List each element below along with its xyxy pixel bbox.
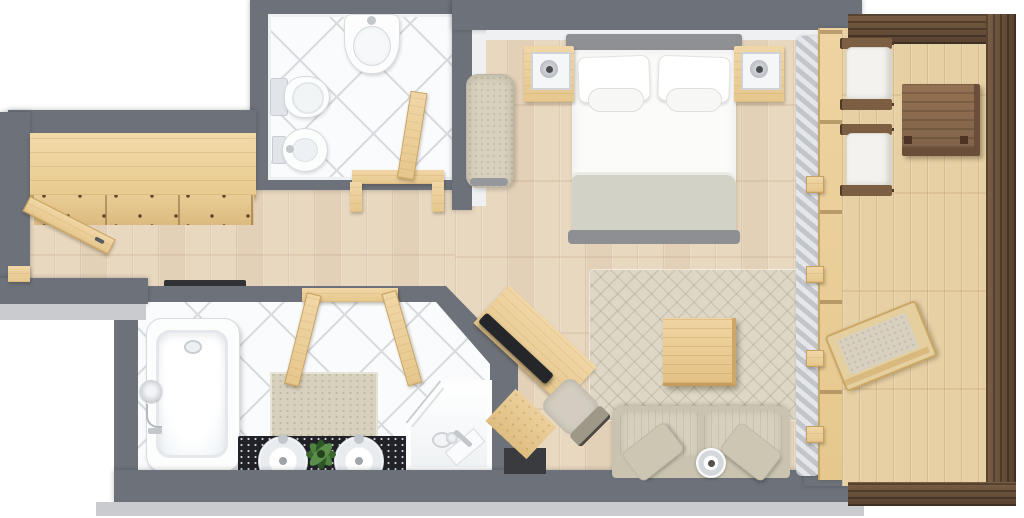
wc-door-jamb bbox=[350, 182, 362, 212]
bed-footboard bbox=[568, 230, 740, 244]
table-leg bbox=[960, 136, 968, 144]
wc-door-jamb bbox=[432, 182, 444, 212]
lamp-bulb bbox=[756, 66, 763, 73]
bedroom-top-wall bbox=[452, 0, 862, 30]
bed-blanket bbox=[572, 172, 736, 234]
door-handle-icon bbox=[94, 236, 105, 244]
faucet-icon bbox=[286, 145, 294, 153]
toilet bbox=[270, 74, 330, 118]
nightstand-left bbox=[524, 46, 574, 102]
coffee-table bbox=[663, 318, 736, 386]
balcony-table bbox=[902, 84, 980, 156]
window-mullion bbox=[806, 176, 824, 193]
window-mullion bbox=[806, 426, 824, 443]
balcony-railing-right bbox=[986, 14, 1016, 506]
potted-plant bbox=[302, 434, 340, 474]
window-mullion bbox=[806, 266, 824, 283]
bathtub-tap bbox=[148, 428, 162, 434]
wardrobe bbox=[30, 133, 256, 197]
entry-door-jamb bbox=[8, 266, 30, 282]
sofa bbox=[612, 406, 790, 478]
washbasin-bowl bbox=[353, 26, 391, 66]
decor-bowl bbox=[696, 448, 726, 478]
bathtub bbox=[146, 318, 238, 470]
toilet-seat bbox=[292, 82, 324, 114]
faucet-icon bbox=[278, 434, 288, 444]
bed-bolster-right bbox=[666, 88, 722, 112]
drain-icon bbox=[279, 457, 287, 465]
wc-washbasin bbox=[344, 14, 398, 74]
shower-head-icon bbox=[140, 380, 162, 402]
lamp-icon bbox=[750, 60, 768, 78]
bench-base bbox=[470, 178, 508, 186]
upholstered-bench bbox=[466, 74, 514, 188]
chair-armrest bbox=[842, 185, 892, 196]
drain-icon bbox=[355, 457, 363, 465]
window-mullion bbox=[806, 350, 824, 367]
bathtub-drain bbox=[184, 340, 202, 354]
lamp-bulb bbox=[546, 66, 553, 73]
faucet-icon bbox=[367, 16, 376, 25]
floor-plan bbox=[0, 0, 1024, 518]
bed-headboard bbox=[566, 34, 742, 50]
balcony-armchair-top bbox=[840, 38, 894, 112]
lamp-icon bbox=[540, 60, 558, 78]
balcony-railing-bottom bbox=[848, 482, 1016, 506]
wall-outer-face bbox=[96, 502, 864, 516]
outside-area bbox=[0, 300, 116, 518]
chair-cushion bbox=[846, 47, 892, 103]
curtain bbox=[796, 36, 820, 476]
table-leg bbox=[904, 136, 912, 144]
nightstand-right bbox=[734, 46, 784, 102]
wall-outer-face bbox=[0, 304, 146, 320]
bed-bolster-left bbox=[588, 88, 644, 112]
faucet-icon bbox=[354, 434, 364, 444]
double-bed bbox=[566, 34, 742, 244]
chair-cushion bbox=[846, 133, 892, 189]
bidet-basin bbox=[292, 138, 318, 162]
bowl-center bbox=[708, 460, 715, 467]
plant-center bbox=[317, 450, 325, 458]
chair-armrest bbox=[842, 99, 892, 110]
bidet bbox=[272, 128, 330, 170]
balcony-armchair-bottom bbox=[840, 124, 894, 198]
